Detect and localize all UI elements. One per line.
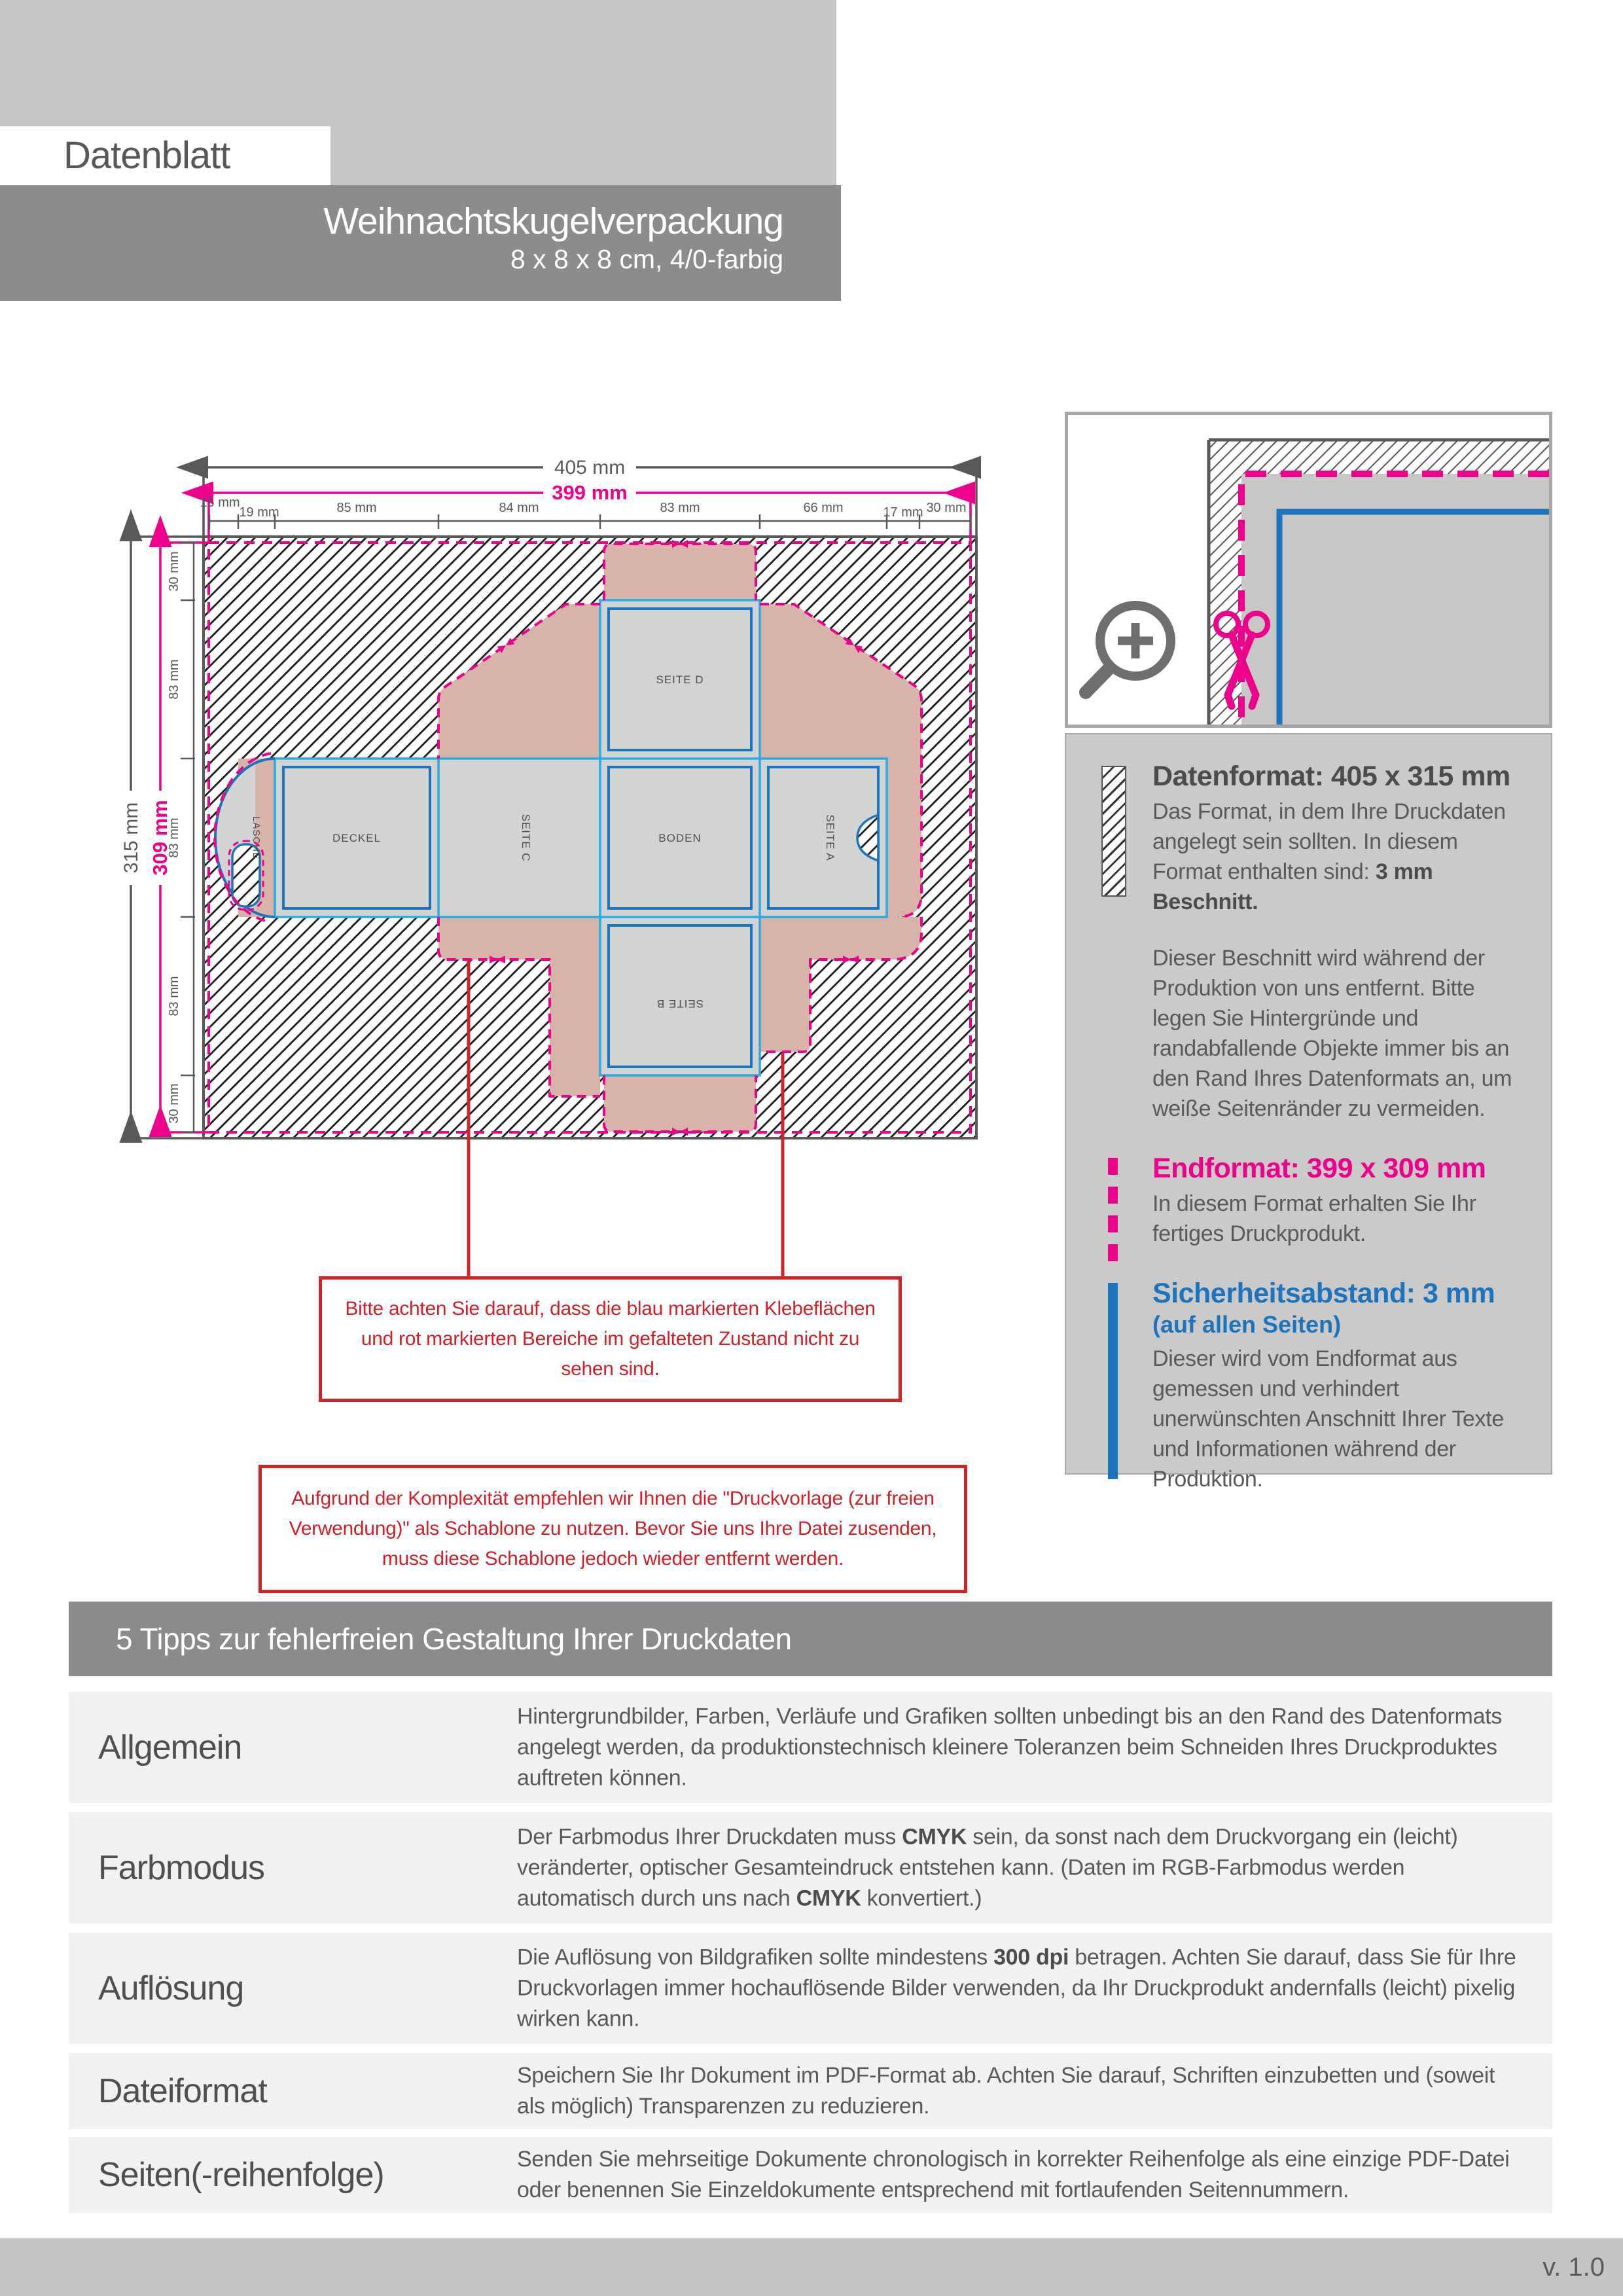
tip-text: Hintergrundbilder, Farben, Verläufe und … <box>517 1702 1526 1794</box>
tip-text: Speichern Sie Ihr Dokument im PDF-Format… <box>517 2060 1526 2122</box>
tip-label: Seiten(-reihenfolge) <box>98 2155 384 2195</box>
tip-row-aufloesung: Auflösung Die Auflösung von Bildgrafiken… <box>69 1933 1552 2044</box>
svg-text:84 mm: 84 mm <box>499 501 539 515</box>
tip-label: Allgemein <box>98 1728 241 1767</box>
label-seite-b: SEITE B <box>656 997 704 1010</box>
note-schablone: Aufgrund der Komplexität empfehlen wir I… <box>259 1465 967 1593</box>
tip-row-dateiformat: Dateiformat Speichern Sie Ihr Dokument i… <box>69 2053 1552 2129</box>
svg-text:85 mm: 85 mm <box>336 501 376 515</box>
section-endformat: Endformat: 399 x 309 mm In diesem Format… <box>1092 1153 1525 1249</box>
tip-label: Farbmodus <box>98 1848 264 1888</box>
datenformat-body: Das Format, in dem Ihre Druckdaten angel… <box>1152 797 1525 917</box>
svg-text:83 mm: 83 mm <box>167 817 181 857</box>
svg-text:30 mm: 30 mm <box>167 551 181 591</box>
ruler-top <box>209 514 971 529</box>
product-spec: 8 x 8 x 8 cm, 4/0-farbig <box>0 243 783 276</box>
tip-text: Der Farbmodus Ihrer Druckdaten muss CMYK… <box>517 1822 1526 1914</box>
svg-text:30 mm: 30 mm <box>926 501 966 515</box>
label-seite-c: SEITE C <box>520 814 532 861</box>
footer-bar: v. 1.0 <box>0 2238 1623 2296</box>
dim-315-label: 315 mm <box>120 802 142 873</box>
label-seite-d: SEITE D <box>656 673 704 686</box>
sicherheitsabstand-body: Dieser wird vom Endformat aus gemessen u… <box>1152 1344 1525 1494</box>
dim-399-label: 399 mm <box>552 481 627 504</box>
title-bar: Weihnachtskugelverpackung 8 x 8 x 8 cm, … <box>0 185 841 301</box>
label-lasche: LASCHE <box>251 816 262 859</box>
tip-text: Die Auflösung von Bildgrafiken sollte mi… <box>517 1943 1526 2035</box>
tip-text: Senden Sie mehrseitige Dokumente chronol… <box>517 2144 1526 2206</box>
diecut-diagram: DECKEL BODEN SEITE D SEITE C SEITE A SEI… <box>98 452 988 1283</box>
magnifier-icon <box>1086 605 1171 692</box>
section-datenformat: Datenformat: 405 x 315 mm Das Format, in… <box>1092 761 1525 1124</box>
sicherheitsabstand-title: Sicherheitsabstand: 3 mm <box>1152 1278 1525 1310</box>
tip-label: Auflösung <box>98 1969 243 2008</box>
label-boden: BODEN <box>658 832 701 844</box>
svg-text:83 mm: 83 mm <box>167 976 181 1016</box>
svg-text:66 mm: 66 mm <box>803 501 843 515</box>
svg-text:19 mm: 19 mm <box>239 505 279 520</box>
sicherheitsabstand-subtitle: (auf allen Seiten) <box>1152 1310 1525 1340</box>
svg-text:17 mm: 17 mm <box>883 505 923 520</box>
ruler-left-labels: 30 mm 83 mm 83 mm 83 mm 30 mm <box>167 551 181 1123</box>
tip-row-seitenreihenfolge: Seiten(-reihenfolge) Senden Sie mehrseit… <box>69 2137 1552 2213</box>
tip-row-allgemein: Allgemein Hintergrundbilder, Farben, Ver… <box>69 1692 1552 1803</box>
svg-text:30 mm: 30 mm <box>167 1083 181 1123</box>
ruler-left <box>181 543 195 1132</box>
corner-detail-box <box>1065 412 1552 728</box>
section-sicherheitsabstand: Sicherheitsabstand: 3 mm (auf allen Seit… <box>1092 1278 1525 1494</box>
svg-text:83 mm: 83 mm <box>660 501 700 515</box>
format-info-panel: Datenformat: 405 x 315 mm Das Format, in… <box>1065 733 1552 1475</box>
tip-label: Dateiformat <box>98 2072 267 2111</box>
bleed-swatch-icon <box>1101 766 1126 897</box>
doc-type-band: Datenblatt <box>0 126 330 185</box>
doc-type-label: Datenblatt <box>63 126 230 185</box>
svg-text:15 mm: 15 mm <box>200 495 240 510</box>
datenformat-body2: Dieser Beschnitt wird während der Produk… <box>1152 943 1525 1124</box>
label-seite-a: SEITE A <box>824 814 836 861</box>
corner-detail-graphic <box>1068 415 1549 725</box>
tips-title: 5 Tipps zur fehlerfreien Gestaltung Ihre… <box>69 1602 1552 1676</box>
endformat-body: In diesem Format erhalten Sie Ihr fertig… <box>1152 1189 1525 1249</box>
label-deckel: DECKEL <box>332 832 381 844</box>
note-klebeflaechen: Bitte achten Sie darauf, dass die blau m… <box>319 1276 902 1402</box>
tips-header-bar: 5 Tipps zur fehlerfreien Gestaltung Ihre… <box>69 1602 1552 1676</box>
endformat-swatch-icon <box>1108 1158 1118 1268</box>
endformat-title: Endformat: 399 x 309 mm <box>1152 1153 1525 1185</box>
product-name: Weihnachtskugelverpackung <box>0 200 783 243</box>
version-label: v. 1.0 <box>1543 2238 1605 2296</box>
safety-swatch-icon <box>1108 1283 1118 1479</box>
dim-405-label: 405 mm <box>554 457 625 478</box>
datenformat-title: Datenformat: 405 x 315 mm <box>1152 761 1525 793</box>
svg-text:83 mm: 83 mm <box>167 659 181 699</box>
tip-row-farbmodus: Farbmodus Der Farbmodus Ihrer Druckdaten… <box>69 1812 1552 1924</box>
